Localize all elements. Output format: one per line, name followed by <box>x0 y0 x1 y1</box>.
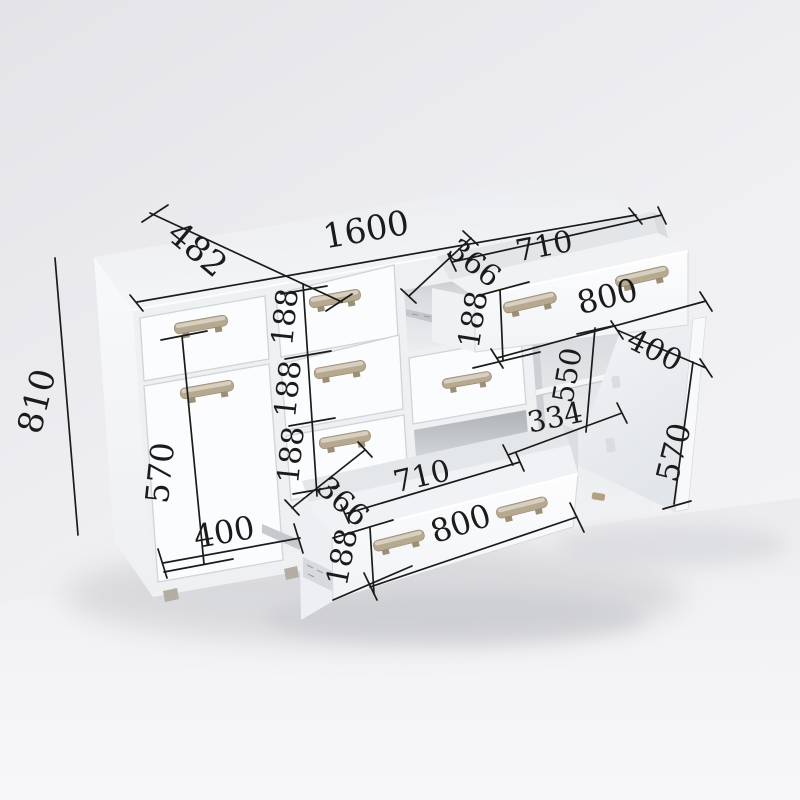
label-center-drawer-1: 188 <box>265 287 306 348</box>
label-left-door-height: 570 <box>138 440 182 505</box>
label-center-drawer-3: 188 <box>271 425 312 486</box>
furniture-dimension-diagram: 1600 482 810 570 400 188 188 188 366 710… <box>0 0 800 800</box>
label-center-drawer-2: 188 <box>268 359 309 420</box>
door-hinge-icon <box>611 376 621 389</box>
door-shadow <box>557 523 787 567</box>
